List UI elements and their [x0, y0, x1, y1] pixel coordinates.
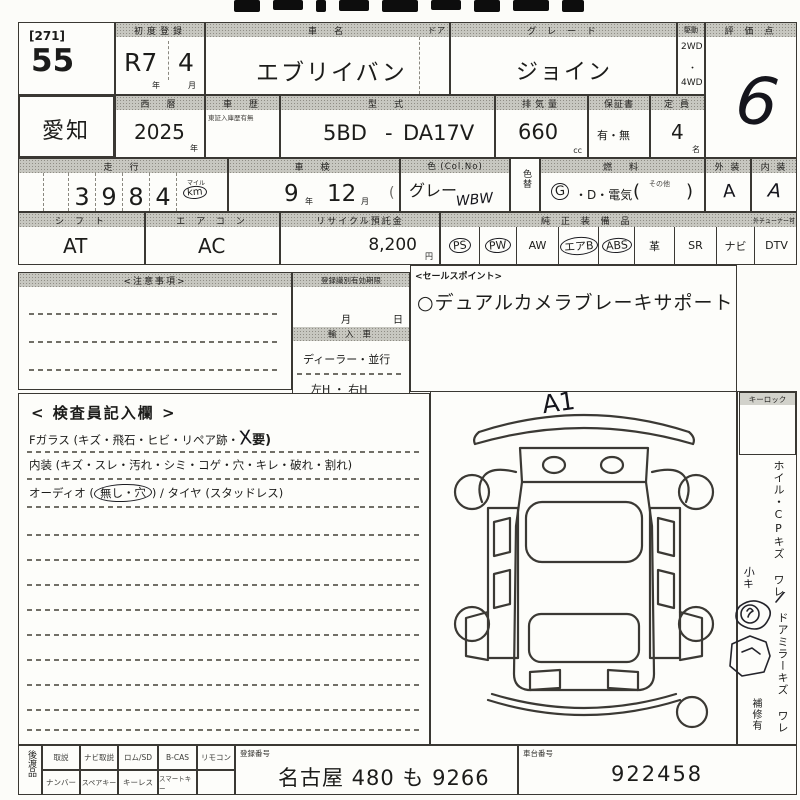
audio-pre: オーディオ (: [29, 486, 94, 500]
registration-id-cell: 登録識別有効期限 月 日 輸 入 車 ディーラー・並行 左H ・ 右H: [292, 272, 410, 405]
history-note: 東証入庫歴有無: [208, 112, 254, 122]
equipment-item: PW: [479, 227, 516, 264]
capacity-label: 定 員: [651, 96, 704, 110]
inspection-year-unit: 年: [305, 196, 313, 207]
interior-line: 内装 (キズ・スレ・汚れ・シミ・コゲ・穴・キレ・破れ・割れ): [29, 457, 352, 473]
first-registration-label: 初度登録: [116, 23, 204, 37]
equipment-dtv: DTV: [765, 239, 788, 252]
inspector-title: < 検査員記入欄 >: [31, 402, 177, 423]
color-change-cell: 色替: [510, 158, 540, 212]
equipment-tuner-note: 外チューナー可: [753, 216, 795, 225]
interior-cell: 内 装 A: [751, 158, 797, 212]
mileage-cell: 走 行 3 9 8 4 マイル km: [18, 158, 228, 212]
fuel-paren-open: (: [633, 181, 640, 202]
inspector-line: [27, 451, 423, 453]
score-value: 6: [731, 61, 782, 143]
warranty-cell: 保証書 有・無: [588, 95, 650, 158]
drive-4wd: 4WD: [681, 78, 703, 88]
equipment-item: ABS: [598, 227, 634, 264]
car-top-view-diagram: [432, 390, 736, 746]
handover-navi-manual: ナビ取説: [80, 745, 118, 770]
equipment-item: DTV: [754, 227, 798, 264]
notes-cell: <注意事項>: [18, 272, 292, 390]
model-code-separator: -: [385, 121, 393, 145]
exterior-label: 外 装: [706, 159, 750, 173]
chassis-number-label: 車台番号: [523, 748, 553, 759]
inspector-line: [27, 609, 423, 611]
color-code-handwritten: WBW: [455, 190, 494, 210]
registration-id-label: 登録識別有効期限: [293, 273, 409, 287]
warranty-value: 有・無: [597, 127, 630, 143]
glass-line-text: Fガラス (キズ・飛石・ヒビ・リペア跡・: [29, 433, 239, 447]
interior-value: A: [767, 180, 782, 203]
fuel-label: 燃 料: [541, 159, 704, 173]
inspector-line: [27, 659, 423, 661]
sales-point-label: <セールスポイント>: [415, 269, 502, 282]
mileage-digit: 8: [123, 173, 150, 211]
inspector-line: [27, 684, 423, 686]
fuel-cell: 燃 料 G ・D・電気 ( その他 ): [540, 158, 705, 212]
year-unit: 年: [152, 80, 160, 91]
mileage-label: 走 行: [19, 159, 227, 173]
mileage-digit: 4: [150, 173, 177, 211]
mirror-damage-note: ドアミラーキズ ワレ: [774, 612, 790, 740]
equipment-airbag: エアB: [559, 235, 598, 256]
drive-cell: 駆動 2WD ・ 4WD: [677, 22, 705, 95]
sales-point-cell: <セールスポイント> ○デュアルカメラブレーキサポート: [410, 265, 737, 392]
keylock-label: キーロック: [740, 393, 795, 405]
audio-circled: 無し・穴: [94, 483, 153, 503]
import-dealer-parallel: ディーラー・並行: [303, 351, 390, 367]
history-cell: 車 歴 東証入庫歴有無: [205, 95, 280, 158]
equipment-sr: SR: [688, 239, 703, 252]
door-subcell-divider: [419, 37, 420, 94]
prefecture-cell: 愛知: [18, 95, 115, 158]
interior-label: 内 装: [752, 159, 796, 173]
displacement-value: 660: [518, 120, 558, 144]
grade-value: ジョイン: [516, 54, 612, 86]
fuel-paren-close: ): [686, 181, 693, 202]
inspector-line: [27, 559, 423, 561]
fuel-gas-circled: G: [550, 182, 569, 200]
equipment-ps: PS: [449, 237, 472, 253]
inspector-line: [27, 584, 423, 586]
chassis-number-value: 922458: [611, 762, 703, 786]
exterior-value: A: [722, 181, 735, 203]
equipment-cell: 純 正 装 備 品 外チューナー可 PS PW AW エアB ABS 革 SR …: [440, 212, 797, 265]
west-year-value: 2025: [134, 120, 185, 144]
inspector-line: [27, 534, 423, 536]
mileage-slot-empty: [43, 173, 69, 211]
repair-note: 補修有: [748, 698, 763, 742]
import-divider: [297, 373, 405, 375]
model-code-label: 型 式: [281, 96, 494, 110]
score-cell: 評 価 点 6: [705, 22, 797, 158]
registration-number-label: 登録番号: [240, 748, 270, 759]
registration-number-cell: 登録番号 名古屋 480 も 9266: [235, 745, 518, 795]
equipment-item: エアB: [558, 227, 598, 264]
inspection-year: 9: [284, 181, 299, 207]
equipment-aw: AW: [529, 239, 547, 252]
inspector-line: [27, 709, 423, 711]
km-unit-circled: km: [183, 185, 207, 200]
displacement-unit: cc: [573, 146, 582, 155]
handover-remote: リモコン: [197, 745, 235, 770]
car-name-value: エブリイバン: [256, 53, 407, 87]
lot-series: [271]: [29, 29, 65, 43]
auction-sheet: [271] 55 初度登録 R7 4 年 月 車 名 ドア エブリイバン グ レ…: [0, 0, 800, 800]
mileage-digit-slots: 3 9 8 4: [43, 173, 179, 211]
handover-empty-cell: [197, 770, 235, 795]
aircon-label: エ ア コ ン: [146, 213, 279, 227]
handover-bcas: B-CAS: [158, 745, 197, 770]
car-name-cell: 車 名 ドア エブリイバン: [205, 22, 450, 95]
grade-cell: グ レ ー ド ジョイン: [450, 22, 677, 95]
displacement-label: 排気量: [496, 96, 587, 110]
inspector-line: [27, 634, 423, 636]
model-code-prefix: 5BD: [323, 121, 367, 145]
lot-number: 55: [31, 43, 74, 79]
glass-tail: 要): [252, 433, 271, 448]
inspection-month: 12: [327, 181, 356, 207]
capacity-cell: 定 員 4 名: [650, 95, 705, 158]
door-label: ドア: [428, 25, 446, 36]
notes-label: <注意事項>: [19, 273, 291, 287]
first-registration-month: 4: [178, 48, 194, 77]
shift-value: AT: [63, 234, 87, 258]
inspector-line: [27, 729, 423, 731]
model-code-cell: 型 式 5BD - DA17V: [280, 95, 495, 158]
west-year-label: 西 暦: [116, 96, 204, 110]
history-label: 車 歴: [206, 96, 279, 110]
drive-dot: ・: [688, 61, 697, 74]
car-name-label: 車 名: [206, 23, 449, 37]
cut-off-title-marks: [234, 0, 614, 13]
recycle-deposit-label: リサイクル預託金: [281, 213, 439, 227]
keylock-cell: キーロック: [739, 392, 796, 455]
drive-label: 駆動: [678, 23, 704, 37]
equipment-leather: 革: [649, 238, 660, 254]
inspection-expiry-cell: 車 検 9 年 12 月 (: [228, 158, 400, 212]
inspector-line: [27, 478, 423, 480]
displacement-cell: 排気量 660 cc: [495, 95, 588, 158]
import-car-label: 輸 入 車: [293, 327, 409, 341]
handover-keyless: キーレス: [118, 770, 158, 795]
registration-id-day-unit: 日: [393, 311, 403, 326]
score-label: 評 価 点: [706, 23, 796, 37]
handover-label-cell: 後渡品: [18, 745, 42, 795]
inspector-line: [27, 506, 423, 508]
first-registration-divider: [168, 41, 169, 80]
first-registration-era: R7: [124, 48, 157, 77]
notes-line: [29, 313, 279, 315]
chassis-number-cell: 車台番号 922458: [518, 745, 797, 795]
warranty-label: 保証書: [589, 96, 649, 110]
fuel-rest: ・D・電気: [575, 186, 632, 203]
equipment-abs: ABS: [601, 237, 632, 254]
inspection-month-unit: 月: [361, 196, 369, 207]
notes-line: [29, 341, 279, 343]
grade-label: グ レ ー ド: [451, 23, 676, 37]
recycle-deposit-unit: 円: [425, 251, 433, 262]
sales-point-value: ○デュアルカメラブレーキサポート: [417, 288, 733, 315]
recycle-deposit-cell: リサイクル預託金 8,200 円: [280, 212, 440, 265]
first-registration-cell: 初度登録 R7 4 年 月: [115, 22, 205, 95]
drive-2wd: 2WD: [681, 42, 703, 52]
shift-cell: シ フ ト AT: [18, 212, 145, 265]
equipment-item: SR: [674, 227, 716, 264]
equipment-label: 純 正 装 備 品: [441, 213, 796, 227]
equipment-item: 革: [634, 227, 674, 264]
handover-number-plate: ナンバー: [42, 770, 80, 795]
diagram-annotation-handwritten: A1: [540, 386, 577, 419]
equipment-item: AW: [516, 227, 558, 264]
west-year-unit: 年: [190, 143, 198, 154]
mileage-digit: 9: [96, 173, 123, 211]
notes-line: [29, 369, 279, 371]
handover-spare-key: スペアキー: [80, 770, 118, 795]
color-label: 色 (Col.No): [401, 159, 509, 173]
lot-cell: [271] 55: [18, 22, 115, 95]
color-cell: 色 (Col.No) グレー WBW: [400, 158, 510, 212]
inspector-cell: < 検査員記入欄 > Fガラス (キズ・飛石・ヒビ・リペア跡・X要) 内装 (キ…: [18, 393, 430, 745]
model-code-value: DA17V: [403, 121, 474, 145]
mileage-digit: 3: [69, 173, 96, 211]
handover-label: 後渡品: [25, 750, 38, 777]
registration-id-month-unit: 月: [341, 311, 351, 326]
prefecture-value: 愛知: [42, 113, 90, 145]
handover-manual: 取説: [42, 745, 80, 770]
capacity-unit: 名: [692, 144, 700, 155]
capacity-value: 4: [671, 120, 684, 144]
color-value: グレー: [409, 177, 457, 201]
glass-x-mark: X: [238, 426, 253, 449]
glass-line: Fガラス (キズ・飛石・ヒビ・リペア跡・X要): [29, 427, 271, 449]
audio-post: ) / タイヤ (スタッドレス): [152, 486, 283, 500]
inspection-paren: (: [389, 185, 394, 201]
audio-line: オーディオ (無し・穴) / タイヤ (スタッドレス): [29, 484, 283, 502]
equipment-pw: PW: [485, 237, 511, 254]
equipment-navi: ナビ: [725, 238, 747, 254]
handover-rom-sd: ロム/SD: [118, 745, 158, 770]
west-year-cell: 西 暦 2025 年: [115, 95, 205, 158]
inspection-expiry-label: 車 検: [229, 159, 399, 173]
aircon-value: AC: [198, 234, 225, 258]
shift-label: シ フ ト: [19, 213, 144, 227]
exterior-cell: 外 装 A: [705, 158, 751, 212]
handover-smart-key: スマートキー: [158, 770, 197, 795]
equipment-item: ナビ: [716, 227, 754, 264]
aircon-cell: エ ア コ ン AC: [145, 212, 280, 265]
registration-number-value: 名古屋 480 も 9266: [278, 762, 490, 792]
fuel-other: その他: [649, 179, 670, 189]
recycle-deposit-value: 8,200: [368, 235, 417, 255]
equipment-item: PS: [441, 227, 479, 264]
color-change-label: 色替: [520, 169, 533, 189]
month-unit: 月: [188, 80, 196, 91]
